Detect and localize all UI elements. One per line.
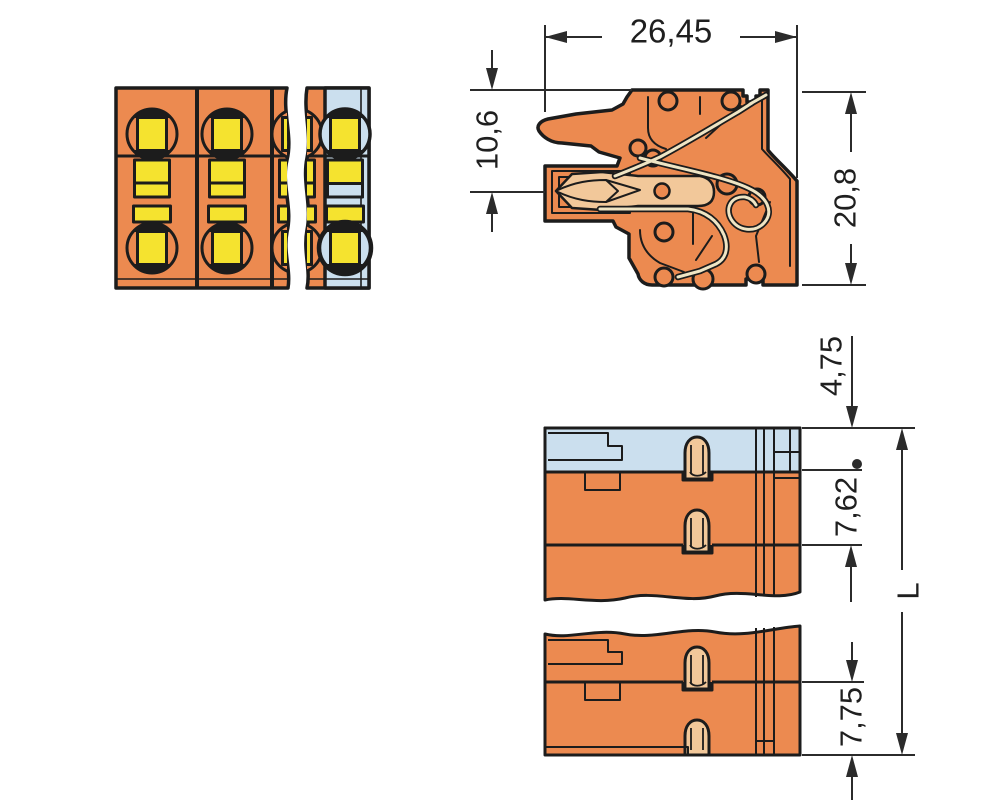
side-section-view: [538, 90, 797, 289]
top-keyhole: [685, 647, 709, 689]
front-view: [116, 88, 371, 288]
dim-label-wire-entry-height: 10,6: [472, 110, 503, 170]
dim-label-first-pole-offset: 4,75: [816, 336, 847, 396]
side-busbar-hole: [655, 184, 670, 199]
top-view-upper-fragment: [545, 428, 800, 601]
front-pole-contacts-endplate: [319, 109, 371, 274]
dim-label-overall-width: 26,45: [630, 15, 713, 48]
top-view-lower-fragment: [545, 626, 800, 755]
technical-drawing: 26,45 10,6 20,8 4,75 7,62 7,75 L: [0, 0, 1000, 810]
dim-label-pole-pitch: 7,62: [831, 477, 862, 537]
top-end-plate-strip: [545, 428, 800, 472]
top-housing-lower: [545, 626, 800, 755]
dim-label-overall-height: 20,8: [830, 168, 861, 228]
front-pole-contacts: [202, 109, 252, 273]
top-keyhole: [685, 510, 709, 552]
dim-label-overall-length: L: [893, 582, 924, 599]
dim-label-end-pole-pitch: 7,75: [836, 687, 867, 747]
front-pole-contacts: [127, 109, 177, 273]
top-keyhole: [685, 437, 709, 479]
